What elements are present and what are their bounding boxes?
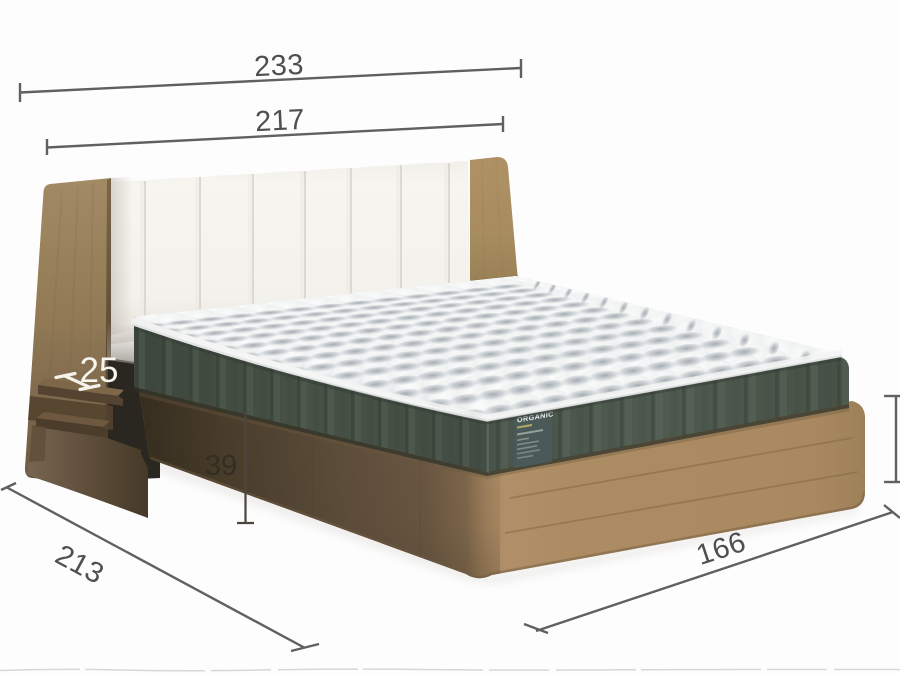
svg-text:217: 217 <box>254 104 305 138</box>
svg-text:25: 25 <box>80 351 119 390</box>
svg-text:233: 233 <box>253 49 304 83</box>
svg-text:39: 39 <box>205 450 237 482</box>
